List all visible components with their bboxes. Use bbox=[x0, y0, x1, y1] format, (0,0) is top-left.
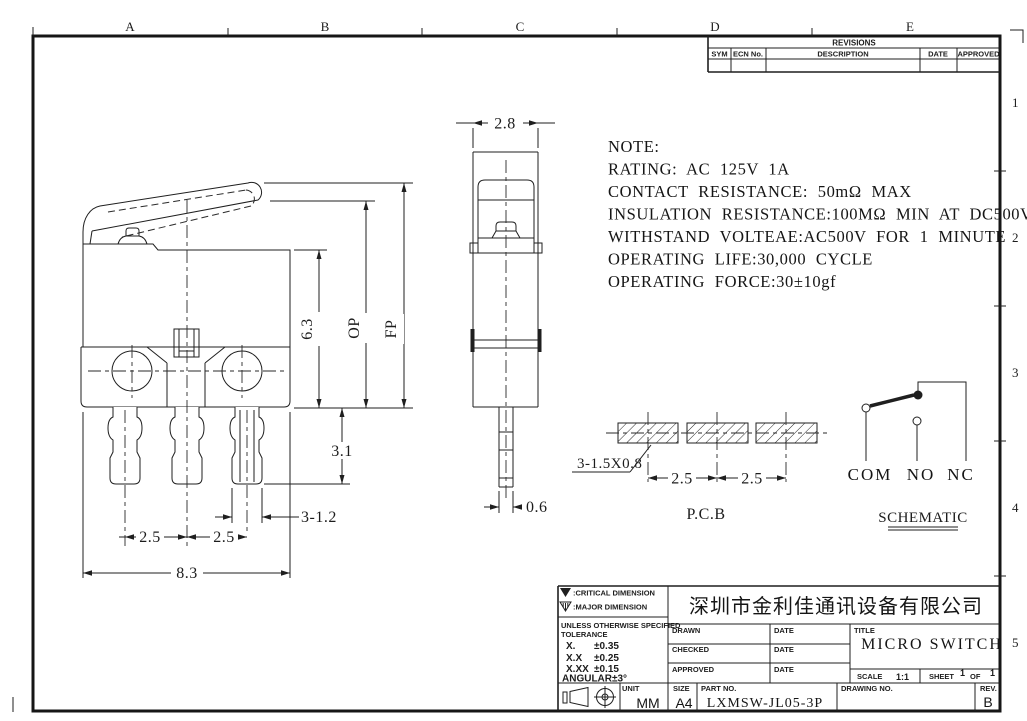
scale-label: SCALE bbox=[857, 672, 882, 681]
dim-pitch-a: 2.5 bbox=[139, 529, 161, 546]
front-view: 2.8 0.6 bbox=[456, 114, 555, 516]
tol-x-value: ±0.35 bbox=[594, 641, 619, 652]
tolerance-header-2: TOLERANCE bbox=[561, 630, 608, 639]
dim-front-width: 2.8 bbox=[494, 116, 516, 133]
unit-label: UNIT bbox=[622, 684, 640, 693]
approved-date-label: DATE bbox=[774, 665, 794, 674]
third-angle-projection-icon bbox=[563, 686, 616, 708]
size-value: A4 bbox=[675, 695, 692, 711]
critical-dimension-label: :CRITICAL DIMENSION bbox=[573, 589, 655, 598]
dim-terminal-length: 3.1 bbox=[331, 443, 353, 460]
revisions-title: REVISIONS bbox=[832, 39, 876, 48]
pcb-layout: 3-1.5X0.8 2.5 2.5 P.C.B bbox=[572, 412, 829, 523]
dim-body-width: 8.3 bbox=[176, 565, 198, 582]
schematic-no-label: NO bbox=[907, 465, 936, 484]
note-line-5: WITHSTAND VOLTEAE:AC500V FOR 1 MINUTE bbox=[608, 227, 1006, 246]
schematic-nc-label: NC bbox=[947, 465, 975, 484]
dim-terminal-thickness: 0.6 bbox=[526, 499, 548, 516]
note-line-6: OPERATING LIFE:30,000 CYCLE bbox=[608, 250, 873, 269]
schematic-nc-contact bbox=[914, 391, 923, 400]
revisions-col-ecn: ECN No. bbox=[733, 50, 763, 59]
revisions-table: REVISIONS SYM ECN No. DESCRIPTION DATE A… bbox=[708, 36, 1000, 72]
schematic-com-label: COM bbox=[848, 465, 893, 484]
zone-row-3: 3 bbox=[1012, 365, 1019, 380]
dim-terminal-width: 3-1.2 bbox=[301, 509, 337, 526]
side-view bbox=[81, 182, 290, 546]
approved-label: APPROVED bbox=[672, 665, 715, 674]
sheet-total: 1 bbox=[990, 668, 995, 678]
part-no-label: PART NO. bbox=[701, 684, 736, 693]
zone-row-1: 1 bbox=[1012, 95, 1019, 110]
schematic-com-contact bbox=[862, 404, 870, 412]
dim-operating-position: OP bbox=[346, 317, 363, 338]
zone-row-5: 5 bbox=[1012, 635, 1019, 650]
zone-col-d: D bbox=[710, 19, 719, 34]
zone-col-c: C bbox=[516, 19, 525, 34]
major-dimension-label: :MAJOR DIMENSION bbox=[573, 603, 647, 612]
trim-mark-top-right bbox=[1010, 30, 1023, 43]
pcb-label: P.C.B bbox=[687, 506, 726, 523]
note-line-7: OPERATING FORCE:30±10gf bbox=[608, 272, 836, 291]
schematic-diagram: COM NO NC SCHEMATIC bbox=[848, 382, 975, 530]
zone-col-e: E bbox=[906, 19, 914, 34]
revisions-col-date: DATE bbox=[928, 50, 948, 59]
checked-date-label: DATE bbox=[774, 645, 794, 654]
pcb-slot-callout: 3-1.5X0.8 bbox=[577, 456, 642, 472]
schematic-lever bbox=[870, 395, 914, 406]
zone-row-4: 4 bbox=[1012, 500, 1019, 515]
tol-angular-label: ANGULAR bbox=[562, 674, 613, 685]
tol-x-label: X. bbox=[566, 641, 576, 652]
rev-label: REV. bbox=[980, 684, 997, 693]
revisions-col-approved: APPROVED bbox=[957, 50, 1000, 59]
revisions-col-description: DESCRIPTION bbox=[817, 50, 868, 59]
rev-value: B bbox=[983, 694, 992, 710]
sheet-of-label: OF bbox=[970, 672, 981, 681]
dim-body-height: 6.3 bbox=[299, 318, 316, 340]
drawn-label: DRAWN bbox=[672, 626, 700, 635]
tol-angular-value: ±3° bbox=[612, 674, 627, 685]
pcb-dim-pitch-a: 2.5 bbox=[671, 471, 693, 488]
tolerance-header-1: UNLESS OTHERWISE SPECIFIED bbox=[561, 621, 681, 630]
zone-col-b: B bbox=[321, 19, 330, 34]
engineering-drawing-sheet: A B C D E 1 2 3 4 5 REVISIONS SYM ECN No… bbox=[0, 0, 1027, 721]
sheet-number: 1 bbox=[960, 668, 965, 678]
pcb-dim-pitch-b: 2.5 bbox=[741, 471, 763, 488]
dim-pitch-b: 2.5 bbox=[213, 529, 235, 546]
company-name: 深圳市金利佳通讯设备有限公司 bbox=[689, 595, 983, 618]
zone-row-2: 2 bbox=[1012, 230, 1019, 245]
tol-xx-value: ±0.25 bbox=[594, 653, 619, 664]
drawing-canvas: A B C D E 1 2 3 4 5 REVISIONS SYM ECN No… bbox=[0, 0, 1027, 721]
unit-value: MM bbox=[636, 695, 659, 711]
tol-xx-label: X.X bbox=[566, 653, 582, 664]
title-label: TITLE bbox=[854, 626, 875, 635]
sheet-label: SHEET bbox=[929, 672, 954, 681]
schematic-no-contact bbox=[913, 417, 921, 425]
notes-block: NOTE: RATING: AC 125V 1A CONTACT RESISTA… bbox=[608, 137, 1027, 291]
note-line-4: INSULATION RESISTANCE:100MΩ MIN AT DC500… bbox=[608, 205, 1027, 224]
scale-value: 1:1 bbox=[896, 672, 909, 682]
drawing-title: MICRO SWITCH bbox=[861, 636, 1003, 653]
drawing-no-label: DRAWING NO. bbox=[841, 684, 893, 693]
zone-col-a: A bbox=[125, 19, 135, 34]
size-label: SIZE bbox=[673, 684, 690, 693]
drawn-date-label: DATE bbox=[774, 626, 794, 635]
note-line-3: CONTACT RESISTANCE: 50mΩ MAX bbox=[608, 182, 912, 201]
dim-free-position: FP bbox=[383, 320, 400, 339]
revisions-col-sym: SYM bbox=[711, 50, 727, 59]
title-block: :CRITICAL DIMENSION :MAJOR DIMENSION UNL… bbox=[558, 586, 1003, 711]
schematic-title: SCHEMATIC bbox=[878, 510, 968, 526]
note-line-2: RATING: AC 125V 1A bbox=[608, 160, 790, 179]
part-no-value: LXMSW-JL05-3P bbox=[707, 696, 823, 711]
checked-label: CHECKED bbox=[672, 645, 710, 654]
note-line-1: NOTE: bbox=[608, 137, 660, 156]
critical-dimension-icon bbox=[560, 588, 571, 597]
